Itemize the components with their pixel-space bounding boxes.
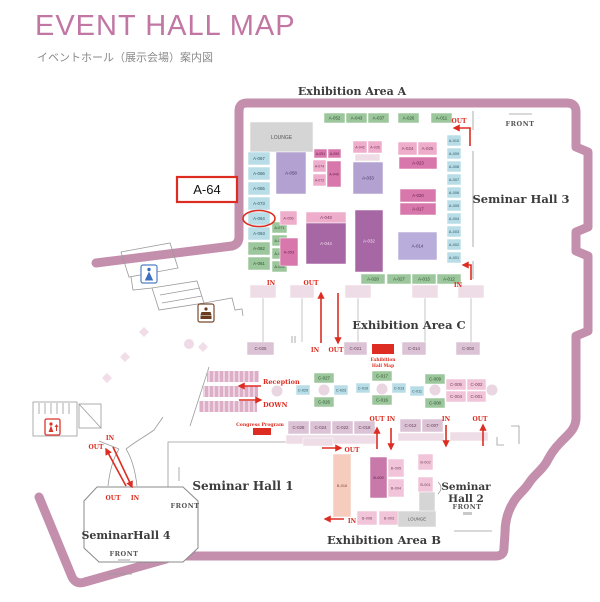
booth-label-a-048: A-048 [320,215,332,220]
booth-label-c-027: C-027 [318,376,331,381]
booth-label-lounge: LOUNGE [271,135,293,141]
booth-label-a-067: A-067 [253,156,265,161]
booth-label-a-051: A-051 [316,152,326,156]
flow-label-in: IN [454,282,463,289]
booth-label-a-011: A-011 [436,116,448,121]
booth-label-a-010: A-010 [449,139,459,143]
booth-label-a-023: A-023 [412,161,424,166]
booth-label-a-052: A-052 [329,116,341,121]
booth-label-a-003: A-003 [449,230,459,234]
booth-label-a-027: A-027 [393,277,405,282]
booth-label-b-016: B-016 [337,484,347,488]
congress-program-marker [253,428,271,435]
booth-label-a-053: A-053 [284,250,294,254]
flow-label-in: IN [131,495,140,502]
flow-label-out: OUT [106,495,121,502]
booth-label-c-023: C-023 [336,388,346,392]
booth-label-a-071: A-071 [274,226,284,230]
area-title-exhibition-a: Exhibition Area A [298,85,407,98]
booth-label-a-012: A-012 [443,277,455,282]
area-title-seminar-hall-4: SeminarHall 4 [81,529,170,542]
booth-label-c-012: C-012 [405,423,418,428]
booth-label-b-003: B-003 [384,516,394,520]
flow-label-out: OUT [329,347,344,354]
booth-label-a-014: A-014 [412,244,424,249]
area-title-exhibition-b: Exhibition Area B [327,533,441,547]
front-label-hall2: FRONT [453,503,482,511]
booth-label-lounge: LOUNGE [408,517,426,522]
booth-label-c-001: C-001 [471,394,484,399]
booth-label-a-044: A-044 [320,241,332,246]
booth-label-a-065: A-065 [253,186,265,191]
booth-label-a-020: A-020 [412,193,424,198]
booth-label-a-056: A-056 [283,216,293,220]
booth-label-c-028: C-028 [293,425,306,430]
area-title-seminar-hall-3: Seminar Hall 3 [472,192,569,206]
booth-label-a-063: A-063 [253,231,265,236]
booth-label-a-042: A-042 [355,145,365,149]
booth-label-a-058: A-058 [285,171,297,176]
booth-label-a-037: A-037 [373,116,385,121]
flow-label-in: IN [106,435,115,442]
svg-text:A-64: A-64 [193,182,220,197]
booth-label-b-004: B-004 [391,486,401,490]
booth-block [398,433,444,441]
booth-label-c-026: C-026 [318,400,331,405]
booth-label-a-005: A-005 [449,204,459,208]
booth-label-c-019: C-019 [358,386,368,390]
flow-label-in: IN [311,347,320,354]
booth-label-b-002: B-002 [420,460,430,464]
congress-program-label: Congress Program [236,422,284,428]
restroom-icon [141,265,157,283]
booth-label-a-013: A-013 [418,277,430,282]
booth-label-c-011: C-011 [412,389,422,393]
booth-block [419,492,435,512]
booth-label-a-033: A-033 [362,176,374,181]
elevator-icon [45,419,60,435]
booth-label-a-006: A-006 [449,191,459,195]
booth-label-a-004: A-004 [449,217,459,221]
booth-label-a-032: A-032 [363,239,375,244]
booth-block [345,285,371,298]
front-label-hall4: FRONT [110,550,139,558]
booth-label-b-009: B-009 [373,476,383,480]
booth-label-c-014: C-014 [408,346,421,351]
flow-label-out: OUT [89,444,104,451]
flow-label-out: OUT [473,416,488,423]
booth-label-a-024: A-024 [402,146,414,151]
booth-label-b-005: B-005 [391,466,401,470]
booth-label-c-013: C-013 [394,386,404,390]
front-label-hall3: FRONT [506,120,535,128]
booth-label-a-001: A-001 [449,256,459,260]
flow-label-out: OUT [304,280,319,287]
booth-label-a-009: A-009 [449,152,459,156]
booth-label-a-064: A-064 [253,216,265,221]
booth-block [412,285,438,298]
flow-label-in: IN [442,416,451,423]
highlight-callout: A-64 [177,177,237,202]
booth-label-c-025: C-025 [255,346,268,351]
booth-label-a-050: A-050 [330,152,340,156]
booth-label-a-017: A-017 [412,207,424,212]
booth-label-c-021: C-021 [350,346,363,351]
flow-label-in: IN [387,416,396,423]
booth-label-c-029: C-029 [298,388,308,392]
event-hall-map-page: EVENT HALL MAP イベントホール（展示会場）案内図 [0,0,600,602]
booth-label-c-016: C-016 [376,398,389,403]
booth-label-a-026: A-026 [403,116,415,121]
area-title-seminar-hall-2-line1: Seminar [441,481,491,493]
booth-label-a-025: A-025 [422,146,434,151]
booth-label-a-028: A-028 [367,277,379,282]
reception-stairs [199,371,259,412]
cloakroom-icon [198,304,214,322]
booth-label-c-009: C-009 [429,377,442,382]
booth-label-c-018: C-018 [359,425,372,430]
booth-label-a-061: A-061 [253,261,265,266]
reception-label: Reception [263,378,300,386]
area-title-exhibition-c: Exhibition Area C [352,318,465,332]
flow-label-out: OUT [370,416,385,423]
booth-block [355,154,380,161]
booth-label-b-008: B-008 [362,516,372,520]
booth-label-a-043: A-043 [351,116,363,121]
booth-label-c-002: C-002 [471,382,484,387]
area-title-seminar-hall-1: Seminar Hall 1 [192,479,293,493]
flow-label-in: IN [267,280,276,287]
flow-arrow [463,265,471,280]
booth-block [303,438,333,446]
booth-label-a-008: A-008 [449,165,459,169]
floor-map: A-052A-043A-037A-026A-011LOUNGEA-067A-06… [0,0,600,602]
booth-label-a-002: A-002 [449,243,459,247]
booth-label-c-005: C-005 [450,382,463,387]
booth-label-c-003: C-003 [462,346,475,351]
flow-label-out: OUT [452,118,467,125]
booth-label-a-036: A-036 [370,145,380,149]
booth-label-a-073: A-073 [253,201,265,206]
booth-label-a-049: A-049 [329,172,339,176]
front-label-hall1: FRONT [171,502,200,510]
booth-label-c-008: C-008 [429,401,442,406]
svg-text:Hall Map: Hall Map [372,364,394,369]
seminar-hall4-room [84,487,198,562]
booth-label-a-066: A-066 [253,171,265,176]
booth-label-a-074: A-074 [315,164,325,168]
booth-label-a-072: A-072 [315,178,325,182]
down-label: DOWN [263,401,288,409]
flow-label-out: OUT [345,447,360,454]
booth-label-a-007: A-007 [449,178,459,182]
hall-map-legend: Exhibition Hall Map [371,344,397,369]
booth-label-c-004: C-004 [450,394,463,399]
booth-label-c-024: C-024 [315,425,328,430]
booth-label-c-022: C-022 [337,425,350,430]
booth-label-c-017: C-017 [376,374,389,379]
flow-label-in: IN [348,518,357,525]
booth-label-b-001: B-001 [420,483,430,487]
svg-text:Exhibition: Exhibition [371,358,397,363]
booth-label-c-007: C-007 [427,423,440,428]
booth-label-a-062: A-062 [253,246,265,251]
